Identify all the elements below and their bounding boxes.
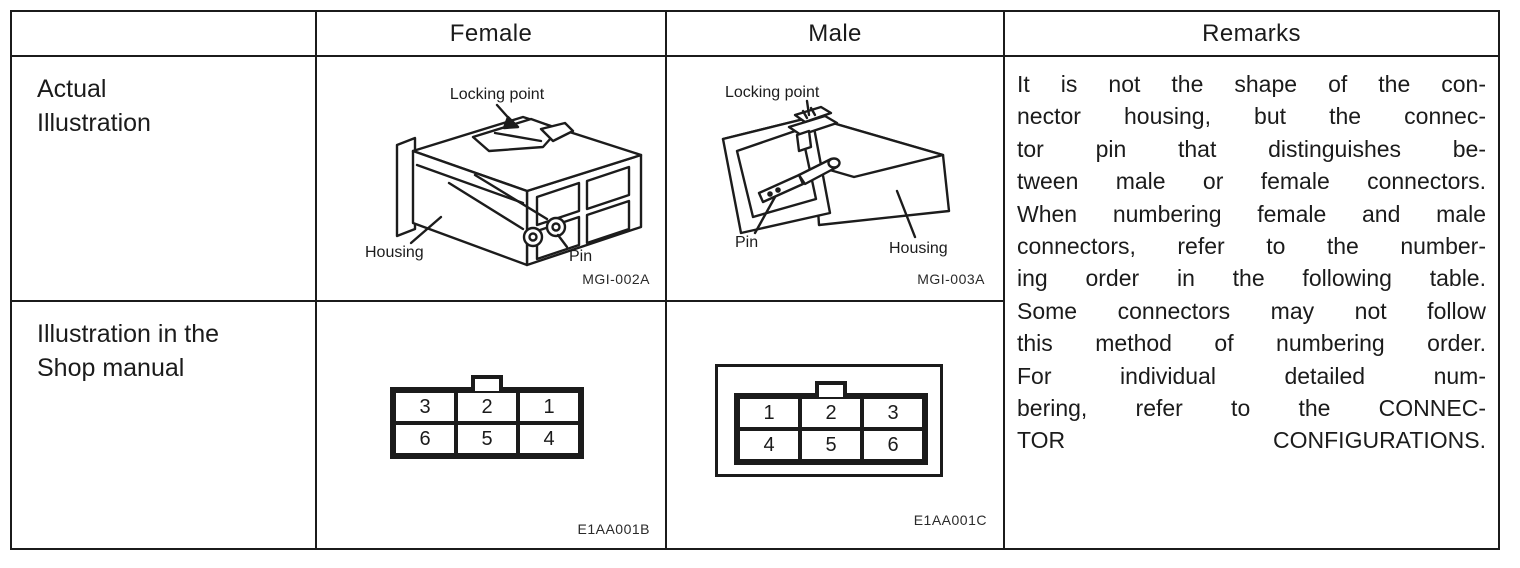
header-blank xyxy=(12,12,317,57)
male-connector-outline: 1 2 3 4 5 6 xyxy=(715,364,943,477)
connector-table: Female Male Remarks Actual Illustration xyxy=(10,10,1500,550)
remarks-line: connectors, refer to the number- xyxy=(1017,230,1486,262)
female-connector-drawing: Locking point Housing Pin xyxy=(357,79,657,279)
manual-page: Female Male Remarks Actual Illustration xyxy=(0,0,1520,568)
header-male: Male xyxy=(667,12,1005,57)
female-shop-cell: 3 2 1 6 5 4 E1AA001B xyxy=(317,302,667,548)
remarks-line: this method of numbering order. xyxy=(1017,327,1486,359)
pin-cell: 6 xyxy=(394,423,456,455)
row-label-line: Illustration in the xyxy=(37,317,305,351)
pin-cell: 5 xyxy=(456,423,518,455)
locking-point-label: Locking point xyxy=(450,86,545,103)
figure-code: MGI-002A xyxy=(582,271,650,287)
female-pin-grid: 3 2 1 6 5 4 xyxy=(390,387,584,459)
remarks-line: It is not the shape of the con- xyxy=(1017,68,1486,100)
pin-cell: 2 xyxy=(800,397,862,429)
pin-cell: 5 xyxy=(800,429,862,461)
pin-cell: 6 xyxy=(862,429,924,461)
remarks-line: tor pin that distinguishes be- xyxy=(1017,133,1486,165)
male-pin-grid: 1 2 3 4 5 6 xyxy=(734,393,928,465)
locking-point-label: Locking point xyxy=(725,84,820,101)
housing-label: Housing xyxy=(365,244,424,261)
remarks-line: ing order in the following table. xyxy=(1017,262,1486,294)
male-connector-drawing: Locking point Pin Housing xyxy=(697,75,997,275)
remarks-line: For individual detailed num- xyxy=(1017,360,1486,392)
female-actual-cell: Locking point Housing Pin MGI-002A xyxy=(317,57,667,302)
row-label-actual-illustration: Actual Illustration xyxy=(12,57,317,302)
remarks-line: tween male or female connectors. xyxy=(1017,165,1486,197)
pin-label: Pin xyxy=(569,248,592,265)
figure-code: E1AA001B xyxy=(578,521,651,537)
remarks-line: When numbering female and male xyxy=(1017,198,1486,230)
remarks-line: bering, refer to the CONNEC- xyxy=(1017,392,1486,424)
pin-cell: 1 xyxy=(738,397,800,429)
pin-cell: 1 xyxy=(518,391,580,423)
header-female: Female xyxy=(317,12,667,57)
pin-cell: 3 xyxy=(862,397,924,429)
housing-label: Housing xyxy=(889,240,948,257)
figure-code: E1AA001C xyxy=(914,512,987,528)
row-label-line: Actual xyxy=(37,72,305,106)
row-label-shop-manual: Illustration in the Shop manual xyxy=(12,302,317,548)
pin-cell: 3 xyxy=(394,391,456,423)
connector-tab xyxy=(471,375,503,391)
remarks-line: nector housing, but the connec- xyxy=(1017,100,1486,132)
male-shop-cell: 1 2 3 4 5 6 E1AA001C xyxy=(667,302,1005,548)
pin-cell: 2 xyxy=(456,391,518,423)
pin-label: Pin xyxy=(735,234,758,251)
connector-tab xyxy=(815,381,847,397)
male-actual-cell: Locking point Pin Housing MGI-003A xyxy=(667,57,1005,302)
row-label-line: Shop manual xyxy=(37,351,305,385)
header-remarks: Remarks xyxy=(1005,12,1498,57)
remarks-cell: It is not the shape of the con- nector h… xyxy=(1005,57,1498,548)
pin-cell: 4 xyxy=(738,429,800,461)
remarks-line: TOR CONFIGURATIONS. xyxy=(1017,424,1486,456)
pin-cell: 4 xyxy=(518,423,580,455)
figure-code: MGI-003A xyxy=(917,271,985,287)
remarks-line: Some connectors may not follow xyxy=(1017,295,1486,327)
row-label-line: Illustration xyxy=(37,106,305,140)
